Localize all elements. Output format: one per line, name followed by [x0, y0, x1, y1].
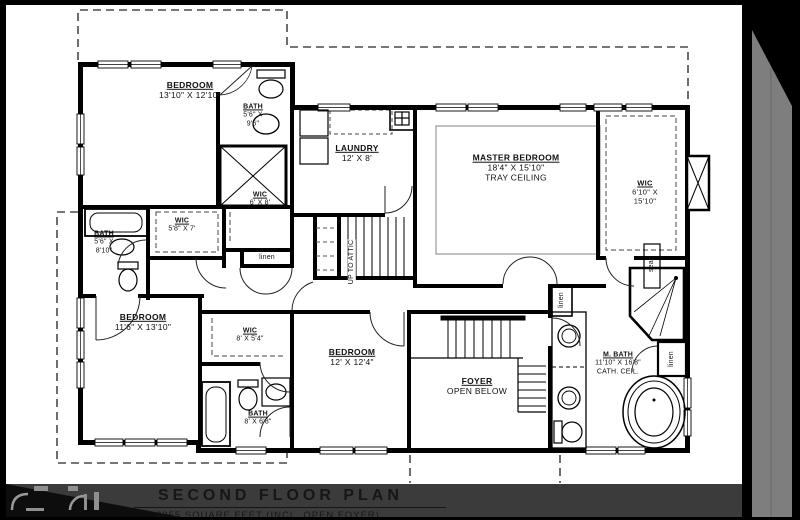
linen-label: linen — [259, 254, 275, 262]
up-to-attic-label: UP TO ATTIC — [348, 239, 356, 285]
room-label-bath1: BATH 5'6" X 9'6" — [243, 103, 263, 128]
room-label-bath3: BATH 8' X 6'8" — [244, 411, 271, 428]
room-labels: BEDROOM 13'10" X 12'10" BATH 5'6" X 9'6"… — [0, 0, 800, 520]
sheet-title: SECOND FLOOR PLAN — [158, 487, 403, 505]
floor-plan-sheet: BEDROOM 13'10" X 12'10" BATH 5'6" X 9'6"… — [0, 0, 800, 520]
room-label-bedroom1: BEDROOM 13'10" X 12'10" — [159, 80, 221, 100]
room-label-foyer: FOYER OPEN BELOW — [447, 376, 507, 396]
room-label-laundry: LAUNDRY 12' X 8' — [335, 143, 378, 163]
room-label-wic2: WIC 5'8" X 7' — [168, 218, 195, 235]
room-label-wic-master: WIC 6'10" X 15'10" — [632, 179, 658, 206]
door-swing-icon — [12, 494, 28, 510]
room-label-master-bedroom: MASTER BEDROOM 18'4" X 15'10" TRAY CEILI… — [473, 153, 560, 184]
seat-label: seat — [648, 258, 656, 272]
room-label-wic3: WIC 8' X 5'4" — [236, 328, 263, 345]
title-underline — [134, 507, 446, 508]
room-label-bedroom2: BEDROOM 11'6" X 13'10" — [115, 312, 171, 332]
linen-label: linen — [668, 351, 676, 367]
sheet-subtitle: 2055 SQUARE FEET (INCL. OPEN FOYER) — [156, 510, 380, 517]
room-label-bath2: BATH 5'6" X 8'10" — [94, 230, 114, 255]
door-symbols-logo — [6, 484, 116, 514]
room-label-bedroom3: BEDROOM 12' X 12'4" — [329, 347, 376, 367]
room-label-wic1: WIC 6' X 8' — [250, 192, 270, 209]
door-swing-icon — [70, 496, 84, 510]
title-bar: SECOND FLOOR PLAN 2055 SQUARE FEET (INCL… — [6, 484, 742, 517]
room-label-master-bath: M. BATH 11'10" X 16'8" CATH. CEIL. — [595, 351, 641, 376]
linen-label: linen — [558, 292, 566, 308]
